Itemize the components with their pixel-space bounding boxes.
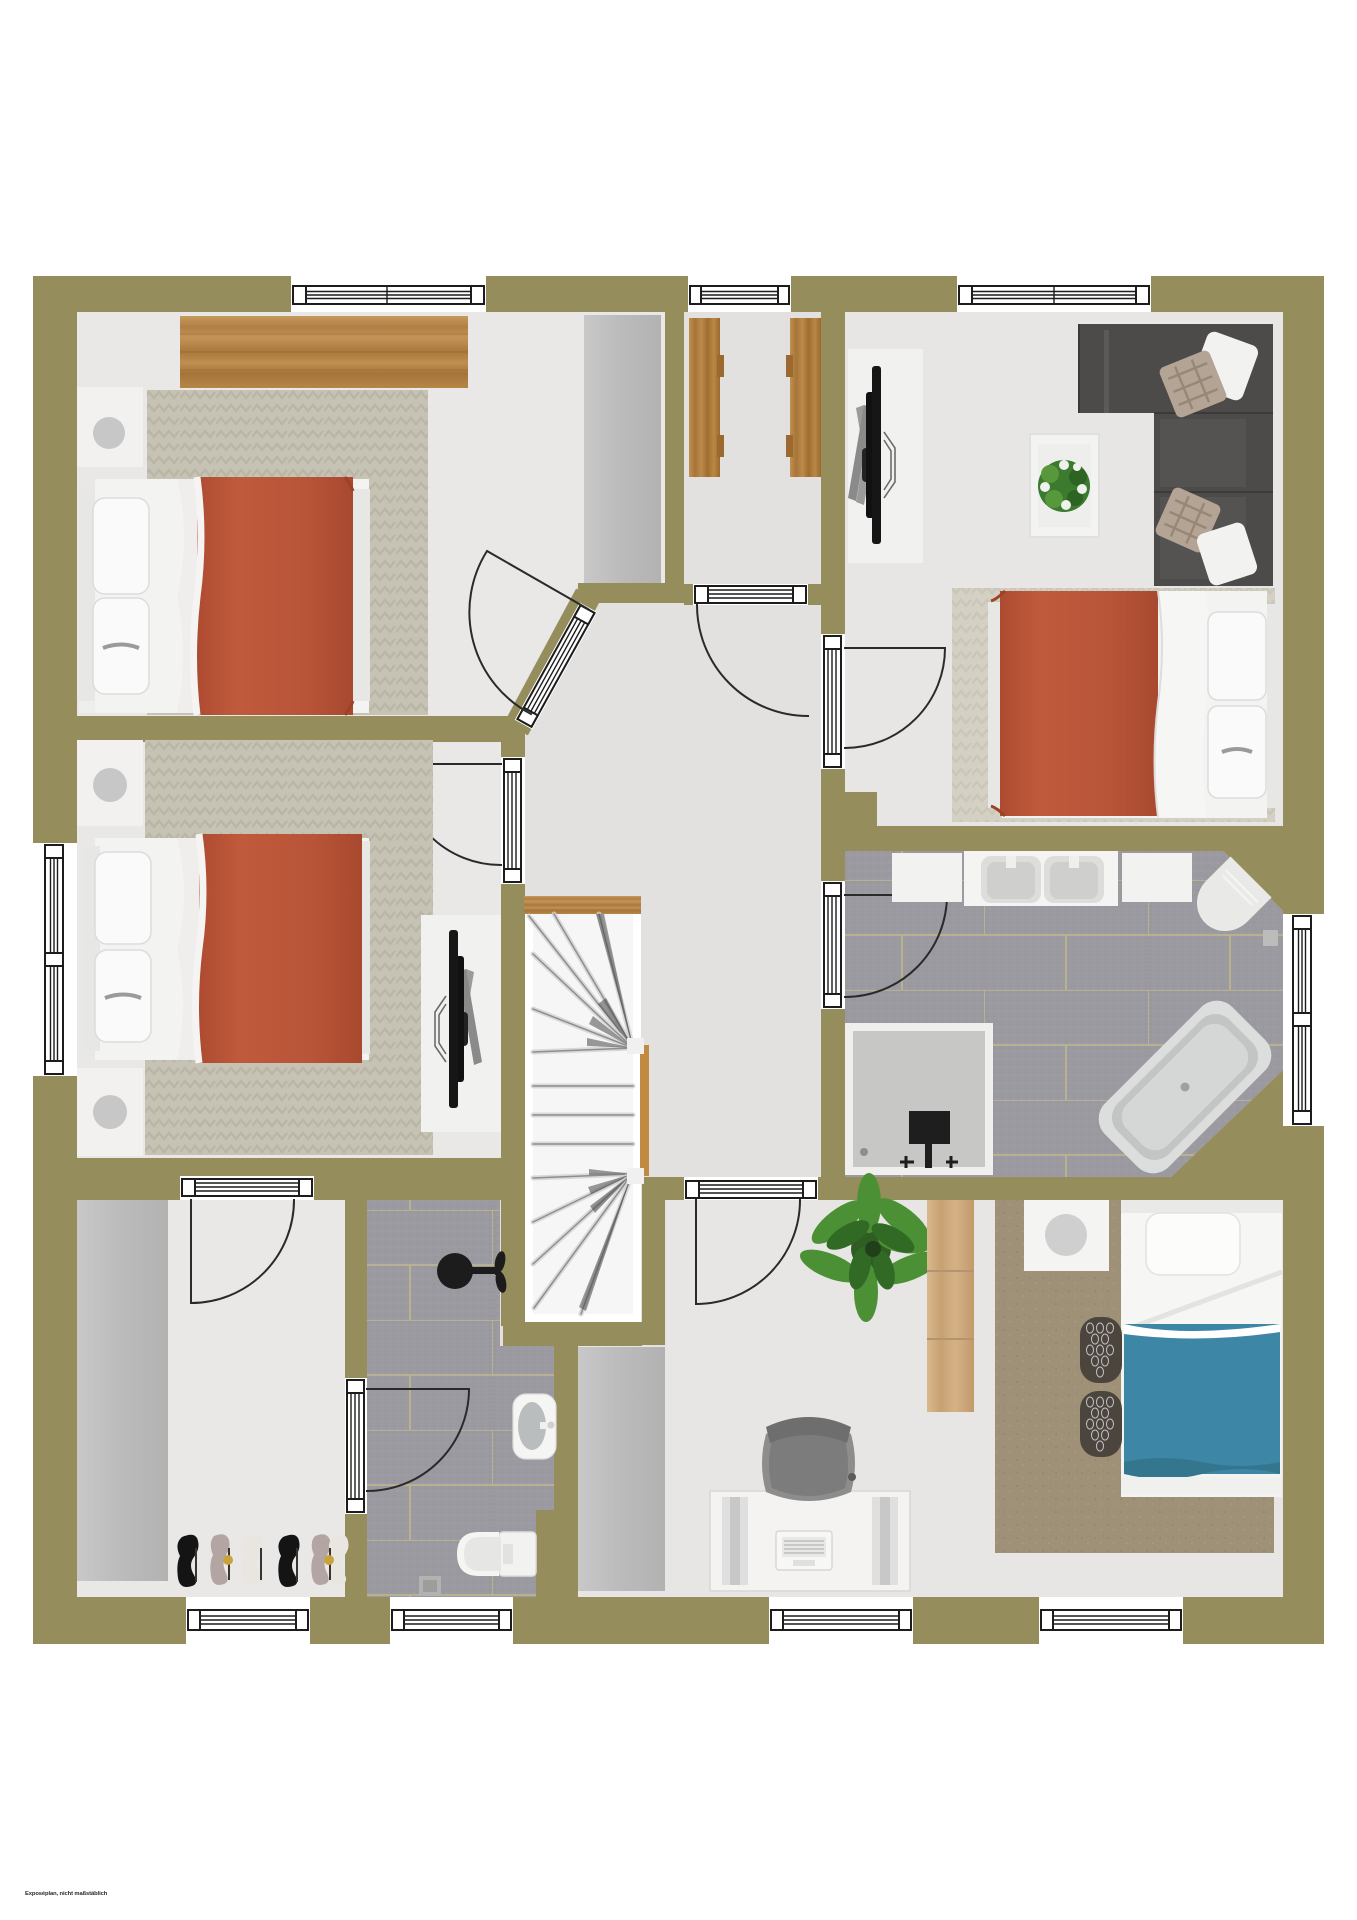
svg-text:Exposéplan, nicht maßstäblich: Exposéplan, nicht maßstäblich [25, 1891, 108, 1897]
